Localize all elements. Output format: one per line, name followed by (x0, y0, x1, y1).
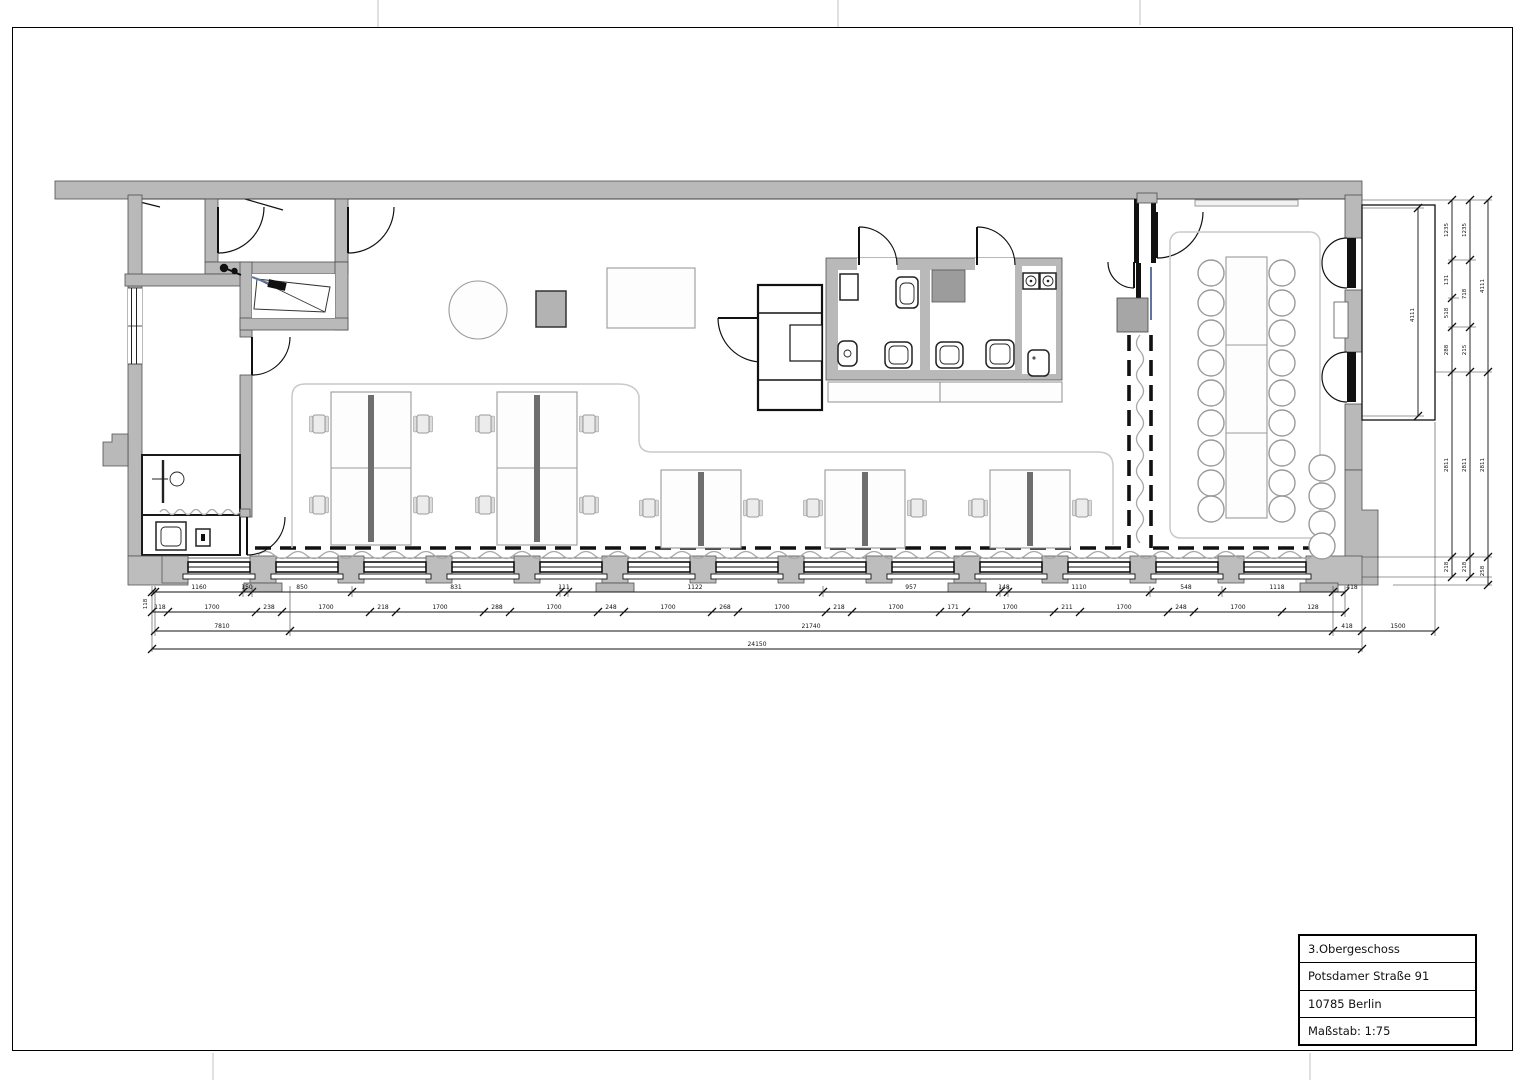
dim-label: 1110 (1071, 584, 1086, 591)
dim-label: 957 (905, 584, 917, 591)
balcony (1362, 205, 1435, 420)
office-furniture (292, 232, 1320, 548)
pillar (1117, 298, 1148, 332)
dim-label: 1235 (1462, 223, 1468, 237)
dim-label: 288 (1444, 344, 1450, 355)
dim-label: 218 (1444, 561, 1450, 572)
dim-label: 118 (143, 598, 149, 609)
dim-label: 218 (1462, 561, 1468, 572)
desk-pair (969, 470, 1092, 548)
dim-label: 1700 (774, 604, 789, 611)
dim-label: 1700 (660, 604, 675, 611)
dim-label: 2811 (1462, 458, 1468, 472)
dim-label: 248 (605, 604, 617, 611)
whiteboard (1195, 200, 1298, 206)
dim-label: 1700 (432, 604, 447, 611)
cabinet (536, 291, 566, 327)
dim-label: 1122 (687, 584, 702, 591)
dim-label: 4111 (1410, 308, 1416, 322)
dim-label: 1118 (1269, 584, 1284, 591)
side-table (607, 268, 695, 328)
desk-cluster (310, 392, 433, 545)
dim-label: 1700 (204, 604, 219, 611)
dim-label: 2811 (1444, 458, 1450, 472)
dim-label: 4111 (1480, 279, 1486, 293)
conference-table (1226, 257, 1267, 518)
dim-label: 1235 (1444, 223, 1450, 237)
dim-label: 218 (833, 604, 845, 611)
dim-label: 21740 (801, 623, 820, 630)
dim-label: 418 (1346, 584, 1358, 591)
dim-label: 268 (719, 604, 731, 611)
dim-label: 2811 (1480, 458, 1486, 472)
dim-label: 128 (1307, 604, 1319, 611)
dim-label: 150 (241, 584, 253, 591)
title-street: Potsdamer Straße 91 (1300, 963, 1475, 990)
dim-label: 238 (263, 604, 275, 611)
dim-label: 518 (1444, 307, 1450, 318)
dim-label: 218 (377, 604, 389, 611)
kitchen-unit (758, 285, 822, 410)
dim-label: 1700 (1002, 604, 1017, 611)
dim-label: 118 (154, 604, 166, 611)
dim-label: 1500 (1390, 623, 1405, 630)
dim-label: 211 (1061, 604, 1073, 611)
dim-label: 1700 (546, 604, 561, 611)
round-table (449, 281, 507, 339)
dim-label: 148 (998, 584, 1010, 591)
dim-label: 418 (1341, 623, 1353, 630)
dim-label: 248 (1175, 604, 1187, 611)
drawing-sheet-page: 1160 150 850 831 111 1122 957 148 1110 5… (0, 0, 1527, 1080)
dim-label: 1700 (1230, 604, 1245, 611)
dim-label: 24150 (747, 641, 766, 648)
dim-label: 131 (1444, 275, 1450, 286)
dim-label: 215 (1462, 344, 1468, 355)
dim-label: 1700 (318, 604, 333, 611)
dim-label: 548 (1180, 584, 1192, 591)
dim-label: 1700 (888, 604, 903, 611)
dim-label: 111 (558, 584, 570, 591)
dim-label: 288 (491, 604, 503, 611)
shower (932, 270, 965, 302)
dim-label: 831 (450, 584, 462, 591)
desk-pair (640, 470, 763, 548)
dim-label: 7810 (214, 623, 229, 630)
floor-plan: 1160 150 850 831 111 1122 957 148 1110 5… (0, 0, 1527, 1080)
dim-label: 718 (1462, 288, 1468, 299)
title-city: 10785 Berlin (1300, 991, 1475, 1018)
desk-cluster (476, 392, 599, 545)
conference-room (1195, 200, 1335, 559)
dim-label: 1160 (191, 584, 206, 591)
desk-pair (804, 470, 927, 548)
dim-label: 171 (947, 604, 959, 611)
title-scale: Maßstab: 1:75 (1300, 1018, 1475, 1044)
window-band (128, 548, 1362, 592)
dim-label: 258 (1480, 565, 1486, 576)
glass-partition (1129, 335, 1151, 548)
counter (940, 382, 1062, 402)
counter (828, 382, 940, 402)
dim-label: 1700 (1116, 604, 1131, 611)
title-floor: 3.Obergeschoss (1300, 936, 1475, 963)
party-wall-strip (55, 181, 1362, 199)
title-block: 3.Obergeschoss Potsdamer Straße 91 10785… (1298, 934, 1477, 1046)
dim-label: 850 (296, 584, 308, 591)
